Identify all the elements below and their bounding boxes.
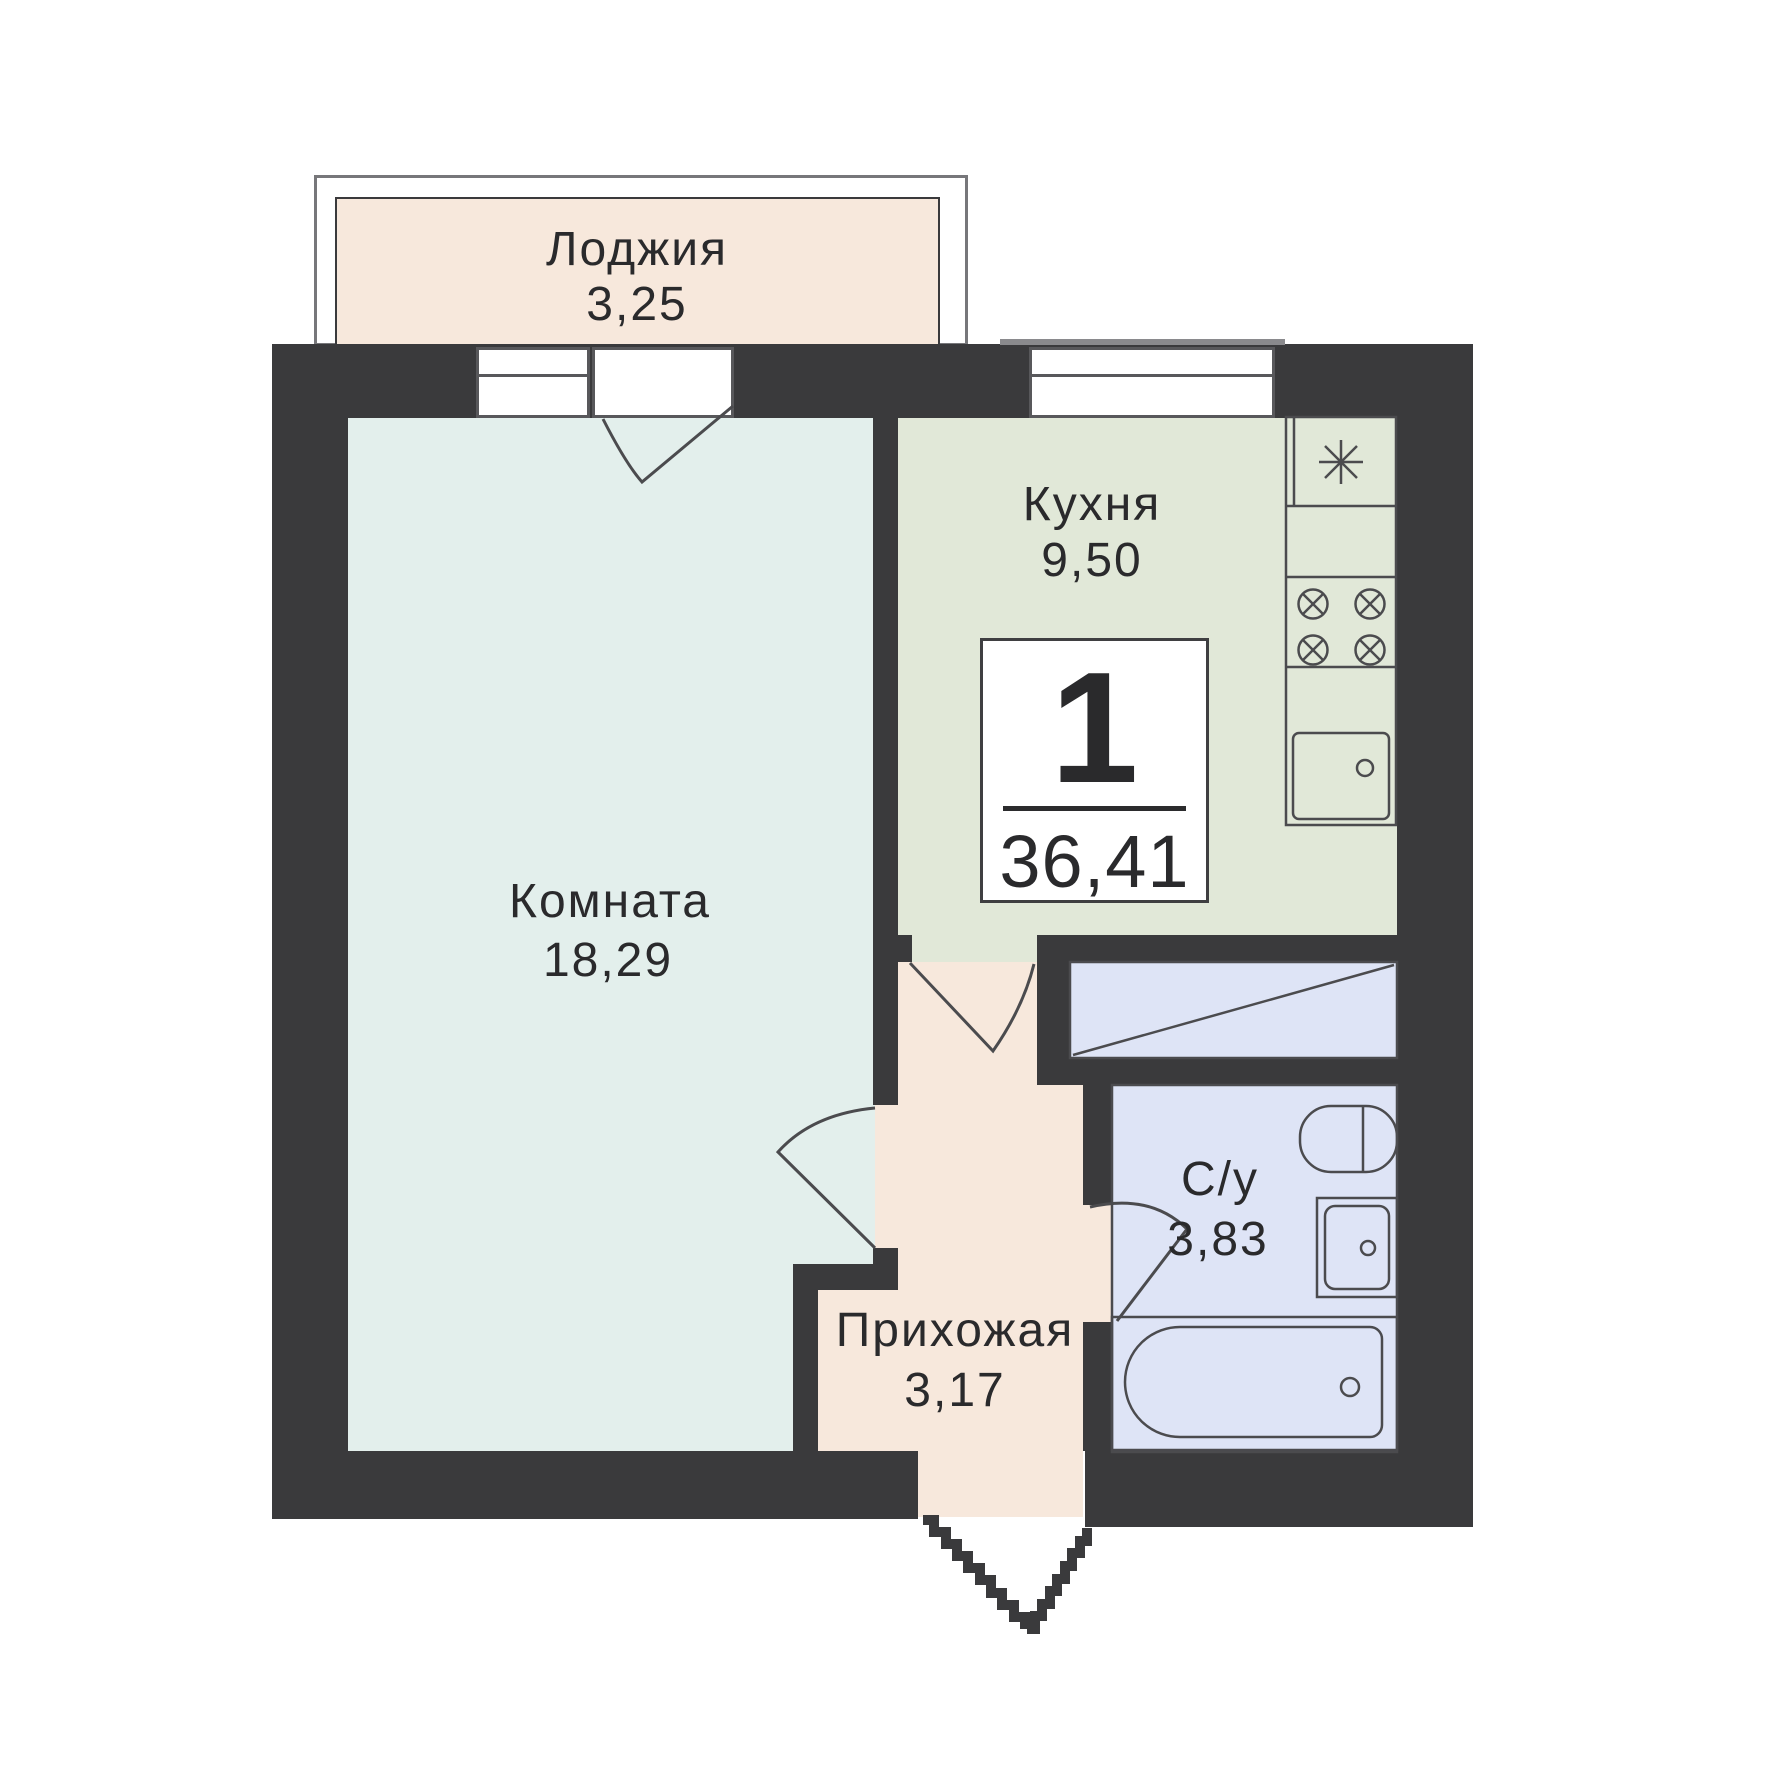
wardrobe-fill [1070, 962, 1397, 1058]
kitchen-window [1029, 347, 1275, 418]
living-room-area: 18,29 [543, 936, 673, 986]
wall-segment [272, 344, 1473, 418]
wall-segment [1037, 935, 1397, 962]
wall-segment [272, 344, 348, 1519]
loggia-area: 3,25 [586, 280, 687, 330]
balcony-door-opening [592, 347, 734, 418]
wall-segment [1083, 1322, 1112, 1451]
bathroom-fill [1112, 1085, 1397, 1450]
bathroom-area: 3,83 [1167, 1215, 1268, 1265]
room-doorway-fill [875, 1105, 898, 1248]
floor-plan: Лоджия 3,25 Комната 18,29 Кухня 9,50 При… [0, 0, 1772, 1772]
entrance-door-icon [923, 1520, 1087, 1629]
wall-segment [898, 935, 912, 962]
badge-divider [1003, 806, 1186, 811]
wall-segment [793, 1264, 898, 1290]
loggia-label: Лоджия [546, 225, 728, 275]
window-mullion [479, 374, 587, 377]
wall-segment [1397, 344, 1473, 1455]
apartment-badge: 1 36,41 [980, 638, 1209, 903]
wall-segment [1083, 1085, 1112, 1205]
window-mullion [1032, 374, 1272, 377]
wall-segment [1037, 1058, 1397, 1085]
kitchen-window-sill [1000, 339, 1285, 345]
hallway-fill-mid [898, 1085, 1083, 1290]
wall-segment [793, 1290, 818, 1451]
hallway-fill-entry [918, 1452, 1083, 1517]
rooms-count: 1 [1051, 649, 1139, 807]
kitchen-area: 9,50 [1041, 536, 1142, 586]
hallway-area: 3,17 [904, 1366, 1005, 1416]
wall-segment [1085, 1450, 1473, 1527]
kitchen-doorway-fill [898, 935, 1037, 962]
room-window [476, 347, 590, 418]
bathroom-label: С/у [1181, 1155, 1259, 1205]
wall-segment [272, 1451, 918, 1519]
bath-doorway-fill [1083, 1205, 1112, 1322]
living-room-label: Комната [509, 877, 711, 927]
hallway-fill-top [898, 962, 1037, 1085]
hallway-label: Прихожая [836, 1306, 1074, 1356]
wall-segment [873, 418, 898, 1105]
kitchen-label: Кухня [1023, 480, 1161, 530]
total-area: 36,41 [999, 825, 1189, 899]
